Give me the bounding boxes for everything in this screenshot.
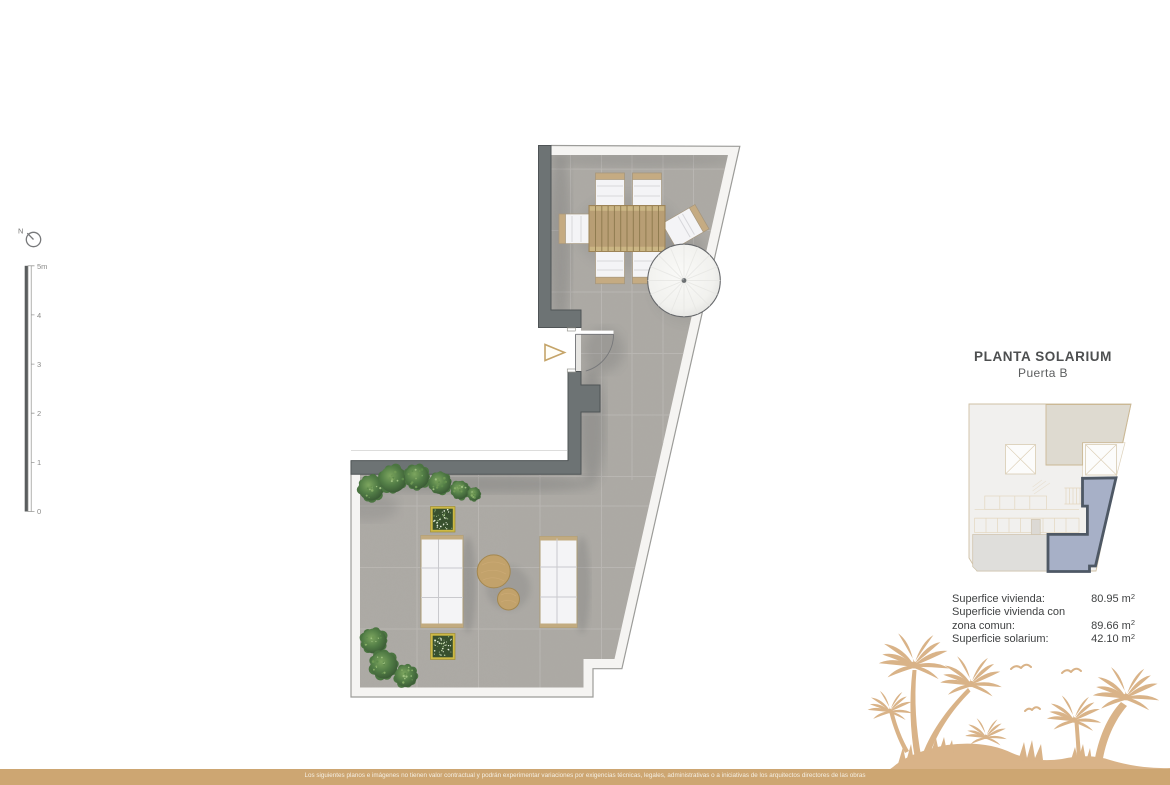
svg-text:3: 3 <box>37 360 41 369</box>
svg-text:5m: 5m <box>37 262 47 271</box>
svg-text:1: 1 <box>37 458 41 467</box>
svg-text:0: 0 <box>37 507 41 516</box>
svg-text:2: 2 <box>37 409 41 418</box>
svg-text:N: N <box>18 227 23 236</box>
svg-text:4: 4 <box>37 311 41 320</box>
